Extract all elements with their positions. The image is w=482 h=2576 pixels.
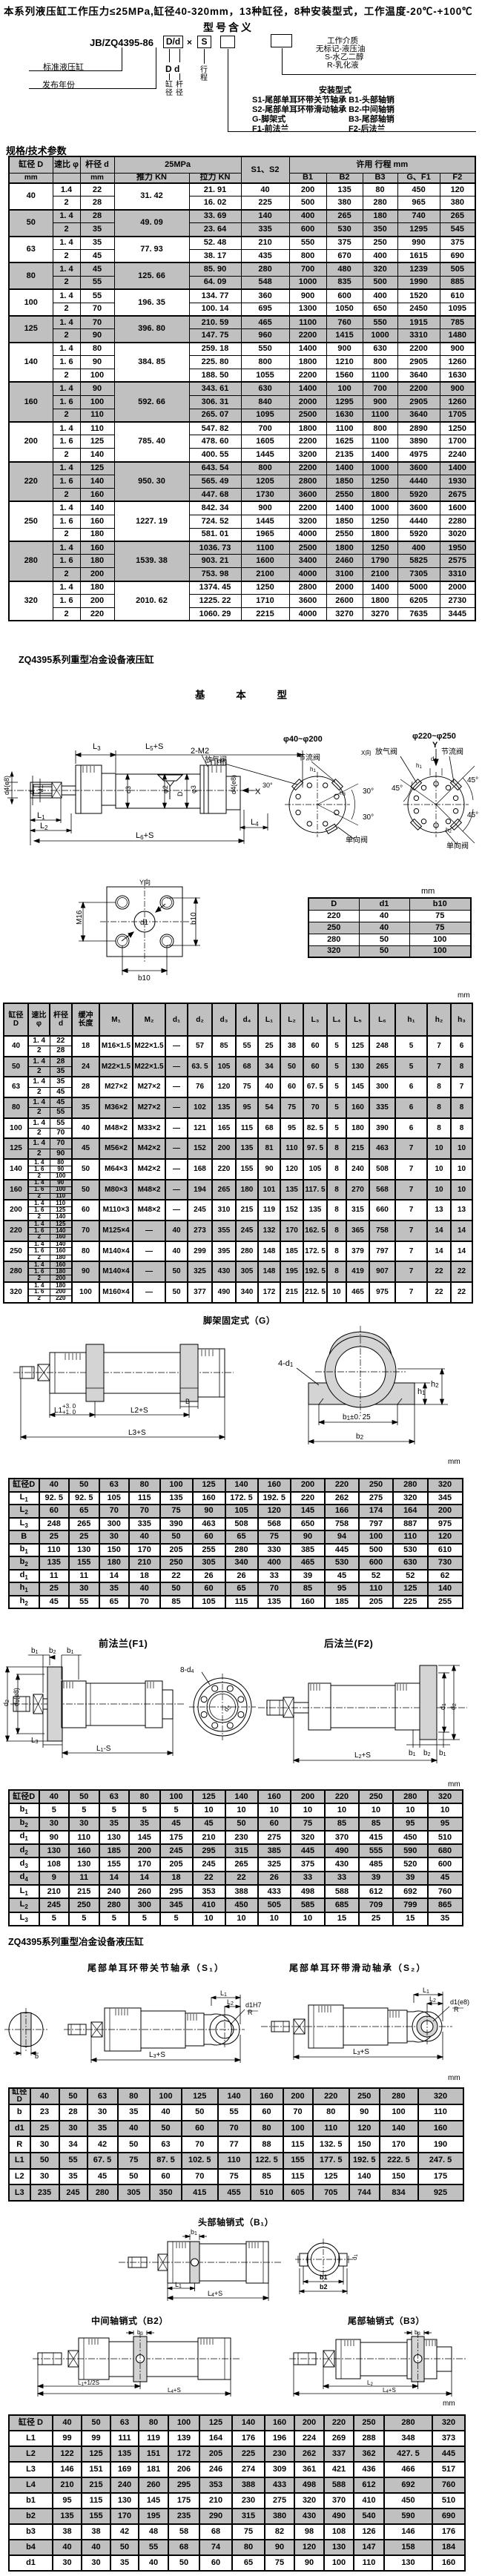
svg-text:8-d4: 8-d4 — [180, 1666, 194, 1674]
svg-text:30°: 30° — [263, 782, 273, 789]
svg-text:L1: L1 — [54, 1407, 63, 1415]
svg-text:L1+1/2S: L1+1/2S — [78, 2380, 99, 2387]
svg-text:L3: L3 — [31, 1737, 39, 1745]
svg-text:L3+S: L3+S — [353, 2048, 369, 2056]
svg-text:M16: M16 — [76, 910, 84, 925]
svg-text:45°: 45° — [392, 785, 403, 793]
svg-text:L1: L1 — [220, 1989, 227, 1998]
svg-text:+1. 0: +1. 0 — [62, 1409, 76, 1416]
svg-text:Y向: Y向 — [139, 878, 151, 886]
svg-text:h2: h2 — [446, 827, 452, 834]
svg-text:b2: b2 — [320, 2283, 328, 2291]
svg-text:h3: h3 — [340, 790, 346, 797]
svg-text:Y: Y — [432, 741, 438, 750]
svg-text:30°: 30° — [363, 787, 374, 796]
svg-text:φ2: φ2 — [162, 785, 169, 793]
svg-text:L3+S: L3+S — [149, 2051, 165, 2059]
svg-text:L4+S: L4+S — [168, 2387, 181, 2394]
svg-text:2-M2: 2-M2 — [191, 747, 209, 756]
svg-text:单向阀: 单向阀 — [346, 835, 368, 845]
svg-text:d1: d1 — [140, 919, 149, 927]
svg-text:L2: L2 — [40, 822, 48, 831]
svg-text:h1: h1 — [416, 762, 422, 770]
svg-text:d4(e8): d4(e8) — [230, 775, 237, 794]
svg-text:h2: h2 — [431, 1380, 439, 1389]
svg-text:4-d1: 4-d1 — [278, 1359, 294, 1368]
svg-text:D: D — [176, 791, 184, 796]
svg-text:放气阀: 放气阀 — [205, 755, 227, 764]
svg-text:R: R — [248, 2009, 253, 2016]
svg-text:d2: d2 — [2, 1700, 10, 1706]
svg-text:L2: L2 — [367, 2380, 373, 2387]
svg-text:L3+S: L3+S — [128, 1429, 146, 1437]
svg-text:L1: L1 — [37, 811, 45, 821]
svg-text:45°: 45° — [467, 811, 478, 819]
svg-text:d1: d1 — [351, 2254, 359, 2260]
svg-text:30°: 30° — [363, 813, 374, 822]
svg-text:b1: b1 — [439, 1749, 446, 1757]
svg-text:L4+S: L4+S — [208, 2290, 222, 2298]
svg-text:d1(e8): d1(e8) — [450, 1998, 469, 2006]
svg-text:单向阀: 单向阀 — [446, 841, 469, 851]
svg-text:B: B — [185, 1398, 190, 1405]
svg-text:X: X — [255, 787, 261, 796]
svg-text:d: d — [28, 790, 36, 794]
svg-text:b2: b2 — [423, 1749, 431, 1757]
svg-text:d3: d3 — [125, 786, 132, 793]
svg-text:b10: b10 — [138, 974, 151, 982]
svg-text:d3: d3 — [222, 1703, 233, 1714]
svg-text:L2+S: L2+S — [131, 1407, 148, 1415]
svg-text:L6+S: L6+S — [136, 831, 153, 841]
svg-text:d1H7: d1H7 — [245, 2001, 262, 2009]
svg-text:放气阀: 放气阀 — [375, 747, 397, 756]
svg-text:h1: h1 — [310, 766, 316, 773]
svg-text:b1: b1 — [31, 1647, 39, 1655]
svg-text:L3: L3 — [93, 742, 101, 752]
svg-text:L1: L1 — [175, 2281, 182, 2289]
svg-text:X向: X向 — [361, 749, 371, 756]
svg-text:b1: b1 — [67, 1647, 74, 1655]
svg-text:b: b — [35, 2052, 39, 2060]
svg-text:d2: d2 — [449, 1703, 458, 1710]
svg-text:φ40~φ200: φ40~φ200 — [283, 735, 323, 744]
svg-text:b10: b10 — [190, 912, 198, 925]
svg-text:R: R — [454, 2006, 459, 2013]
svg-text:L1-S: L1-S — [96, 1745, 111, 1753]
svg-text:b3: b3 — [415, 2329, 420, 2336]
svg-text:L5+S: L5+S — [145, 742, 163, 752]
svg-text:d4(e8): d4(e8) — [3, 776, 10, 795]
svg-text:d1: d1 — [439, 1703, 447, 1710]
svg-text:h1: h1 — [417, 1387, 426, 1396]
svg-text:L2: L2 — [227, 1998, 234, 2007]
svg-text:L1: L1 — [423, 1987, 429, 1995]
svg-text:L2: L2 — [429, 1995, 436, 2004]
svg-text:d1(e8): d1(e8) — [13, 1688, 21, 1706]
svg-text:b1±0. 25: b1±0. 25 — [343, 1413, 371, 1421]
svg-text:φ220~φ250: φ220~φ250 — [412, 732, 456, 741]
svg-text:45°: 45° — [467, 776, 478, 785]
svg-text:b2: b2 — [49, 1647, 56, 1655]
svg-text:节流阀: 节流阀 — [298, 753, 320, 762]
svg-text:b1: b1 — [191, 2228, 197, 2236]
svg-text:φ3: φ3 — [190, 785, 197, 793]
svg-text:b1: b1 — [320, 2273, 328, 2281]
svg-text:M1: M1 — [37, 785, 44, 794]
svg-text:L4+S: L4+S — [383, 2387, 396, 2394]
svg-text:节流阀: 节流阀 — [441, 747, 463, 756]
svg-text:L4: L4 — [251, 818, 259, 828]
svg-text:b2: b2 — [356, 1433, 364, 1441]
svg-text:L2+S: L2+S — [354, 1751, 371, 1760]
svg-text:b1: b1 — [409, 1749, 416, 1757]
svg-text:b3: b3 — [137, 2329, 143, 2336]
